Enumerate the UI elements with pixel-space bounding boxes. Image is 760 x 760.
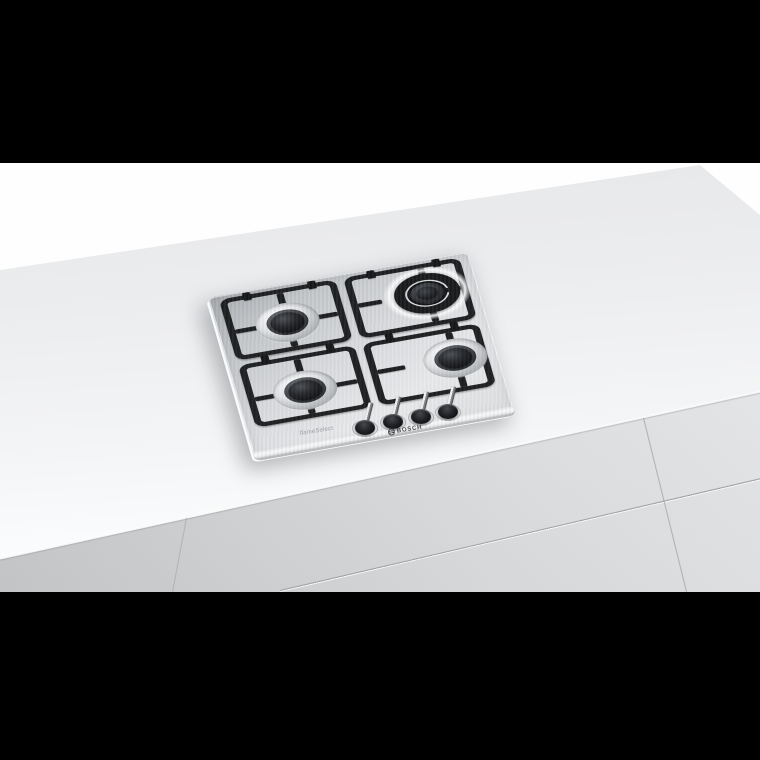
knob-cap	[411, 409, 431, 424]
burner-knob-1	[352, 396, 378, 440]
knob-cap	[438, 404, 458, 419]
bosch-emblem-icon	[387, 428, 395, 436]
letterbox-top	[0, 0, 760, 163]
burner-knob-3	[408, 385, 434, 429]
burner-knob-4	[435, 380, 461, 424]
letterbox-bottom	[0, 592, 760, 760]
grate-fin	[260, 355, 270, 364]
grate-fin	[325, 343, 335, 352]
knob-cap	[355, 420, 375, 435]
product-photo: flameSelect BOSCH	[0, 163, 760, 592]
grate-fin	[384, 333, 394, 342]
grate-fin	[449, 321, 459, 330]
